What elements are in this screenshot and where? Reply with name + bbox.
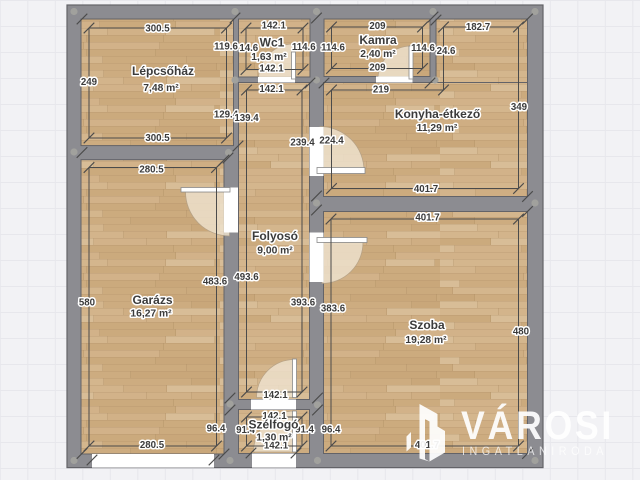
svg-text:Konyha-étkező: Konyha-étkező <box>395 107 480 121</box>
svg-text:209: 209 <box>369 21 386 32</box>
svg-text:383.6: 383.6 <box>321 304 346 315</box>
svg-text:209: 209 <box>369 63 386 74</box>
svg-text:Szélfogó: Szélfogó <box>249 418 299 432</box>
svg-text:Wc1: Wc1 <box>260 36 285 50</box>
svg-text:16,27 m²: 16,27 m² <box>130 309 172 320</box>
svg-text:280.5: 280.5 <box>139 165 164 176</box>
svg-text:300.5: 300.5 <box>145 133 170 144</box>
svg-text:401.7: 401.7 <box>415 213 439 224</box>
svg-text:139.4: 139.4 <box>234 113 259 124</box>
svg-text:119.6: 119.6 <box>214 42 238 53</box>
svg-text:580: 580 <box>79 298 95 309</box>
svg-text:142.1: 142.1 <box>263 390 288 401</box>
svg-text:224.4: 224.4 <box>319 136 344 147</box>
svg-text:96.4: 96.4 <box>322 424 341 435</box>
svg-text:24.6: 24.6 <box>437 46 456 57</box>
svg-text:9,00 m²: 9,00 m² <box>257 246 293 257</box>
svg-text:19,28 m²: 19,28 m² <box>405 335 447 346</box>
svg-text:Folyosó: Folyosó <box>252 229 298 243</box>
svg-text:1,30 m²: 1,30 m² <box>256 433 292 444</box>
svg-text:Szoba: Szoba <box>409 318 445 332</box>
svg-text:401.7: 401.7 <box>414 184 438 195</box>
svg-text:114.6: 114.6 <box>292 42 316 53</box>
svg-text:142.1: 142.1 <box>259 84 284 95</box>
svg-text:493.6: 493.6 <box>234 272 259 283</box>
svg-text:142.1: 142.1 <box>262 21 287 32</box>
svg-text:114.6: 114.6 <box>411 43 435 54</box>
svg-text:480: 480 <box>513 327 529 338</box>
svg-text:2,40 m²: 2,40 m² <box>360 49 396 60</box>
svg-text:219: 219 <box>373 85 390 96</box>
svg-text:7,48 m²: 7,48 m² <box>143 83 179 94</box>
svg-text:11,29 m²: 11,29 m² <box>417 123 458 134</box>
svg-text:INGATLANIRODA: INGATLANIRODA <box>462 444 608 458</box>
svg-text:96.4: 96.4 <box>207 424 226 435</box>
svg-text:142.1: 142.1 <box>259 63 284 74</box>
svg-text:300.5: 300.5 <box>145 24 170 35</box>
svg-text:114.6: 114.6 <box>321 43 345 54</box>
svg-text:VÁROSI: VÁROSI <box>461 403 614 448</box>
svg-text:Kamra: Kamra <box>359 33 397 47</box>
svg-text:1,63 m²: 1,63 m² <box>251 52 287 63</box>
svg-text:349: 349 <box>511 102 528 113</box>
svg-text:483.6: 483.6 <box>203 277 228 288</box>
svg-text:Lépcsőház: Lépcsőház <box>132 64 194 78</box>
svg-text:280.5: 280.5 <box>140 440 165 451</box>
svg-text:239.4: 239.4 <box>290 138 315 149</box>
svg-text:393.6: 393.6 <box>291 298 316 309</box>
svg-text:Garázs: Garázs <box>132 293 172 307</box>
svg-text:249: 249 <box>81 77 98 88</box>
svg-text:182.7: 182.7 <box>466 22 490 33</box>
